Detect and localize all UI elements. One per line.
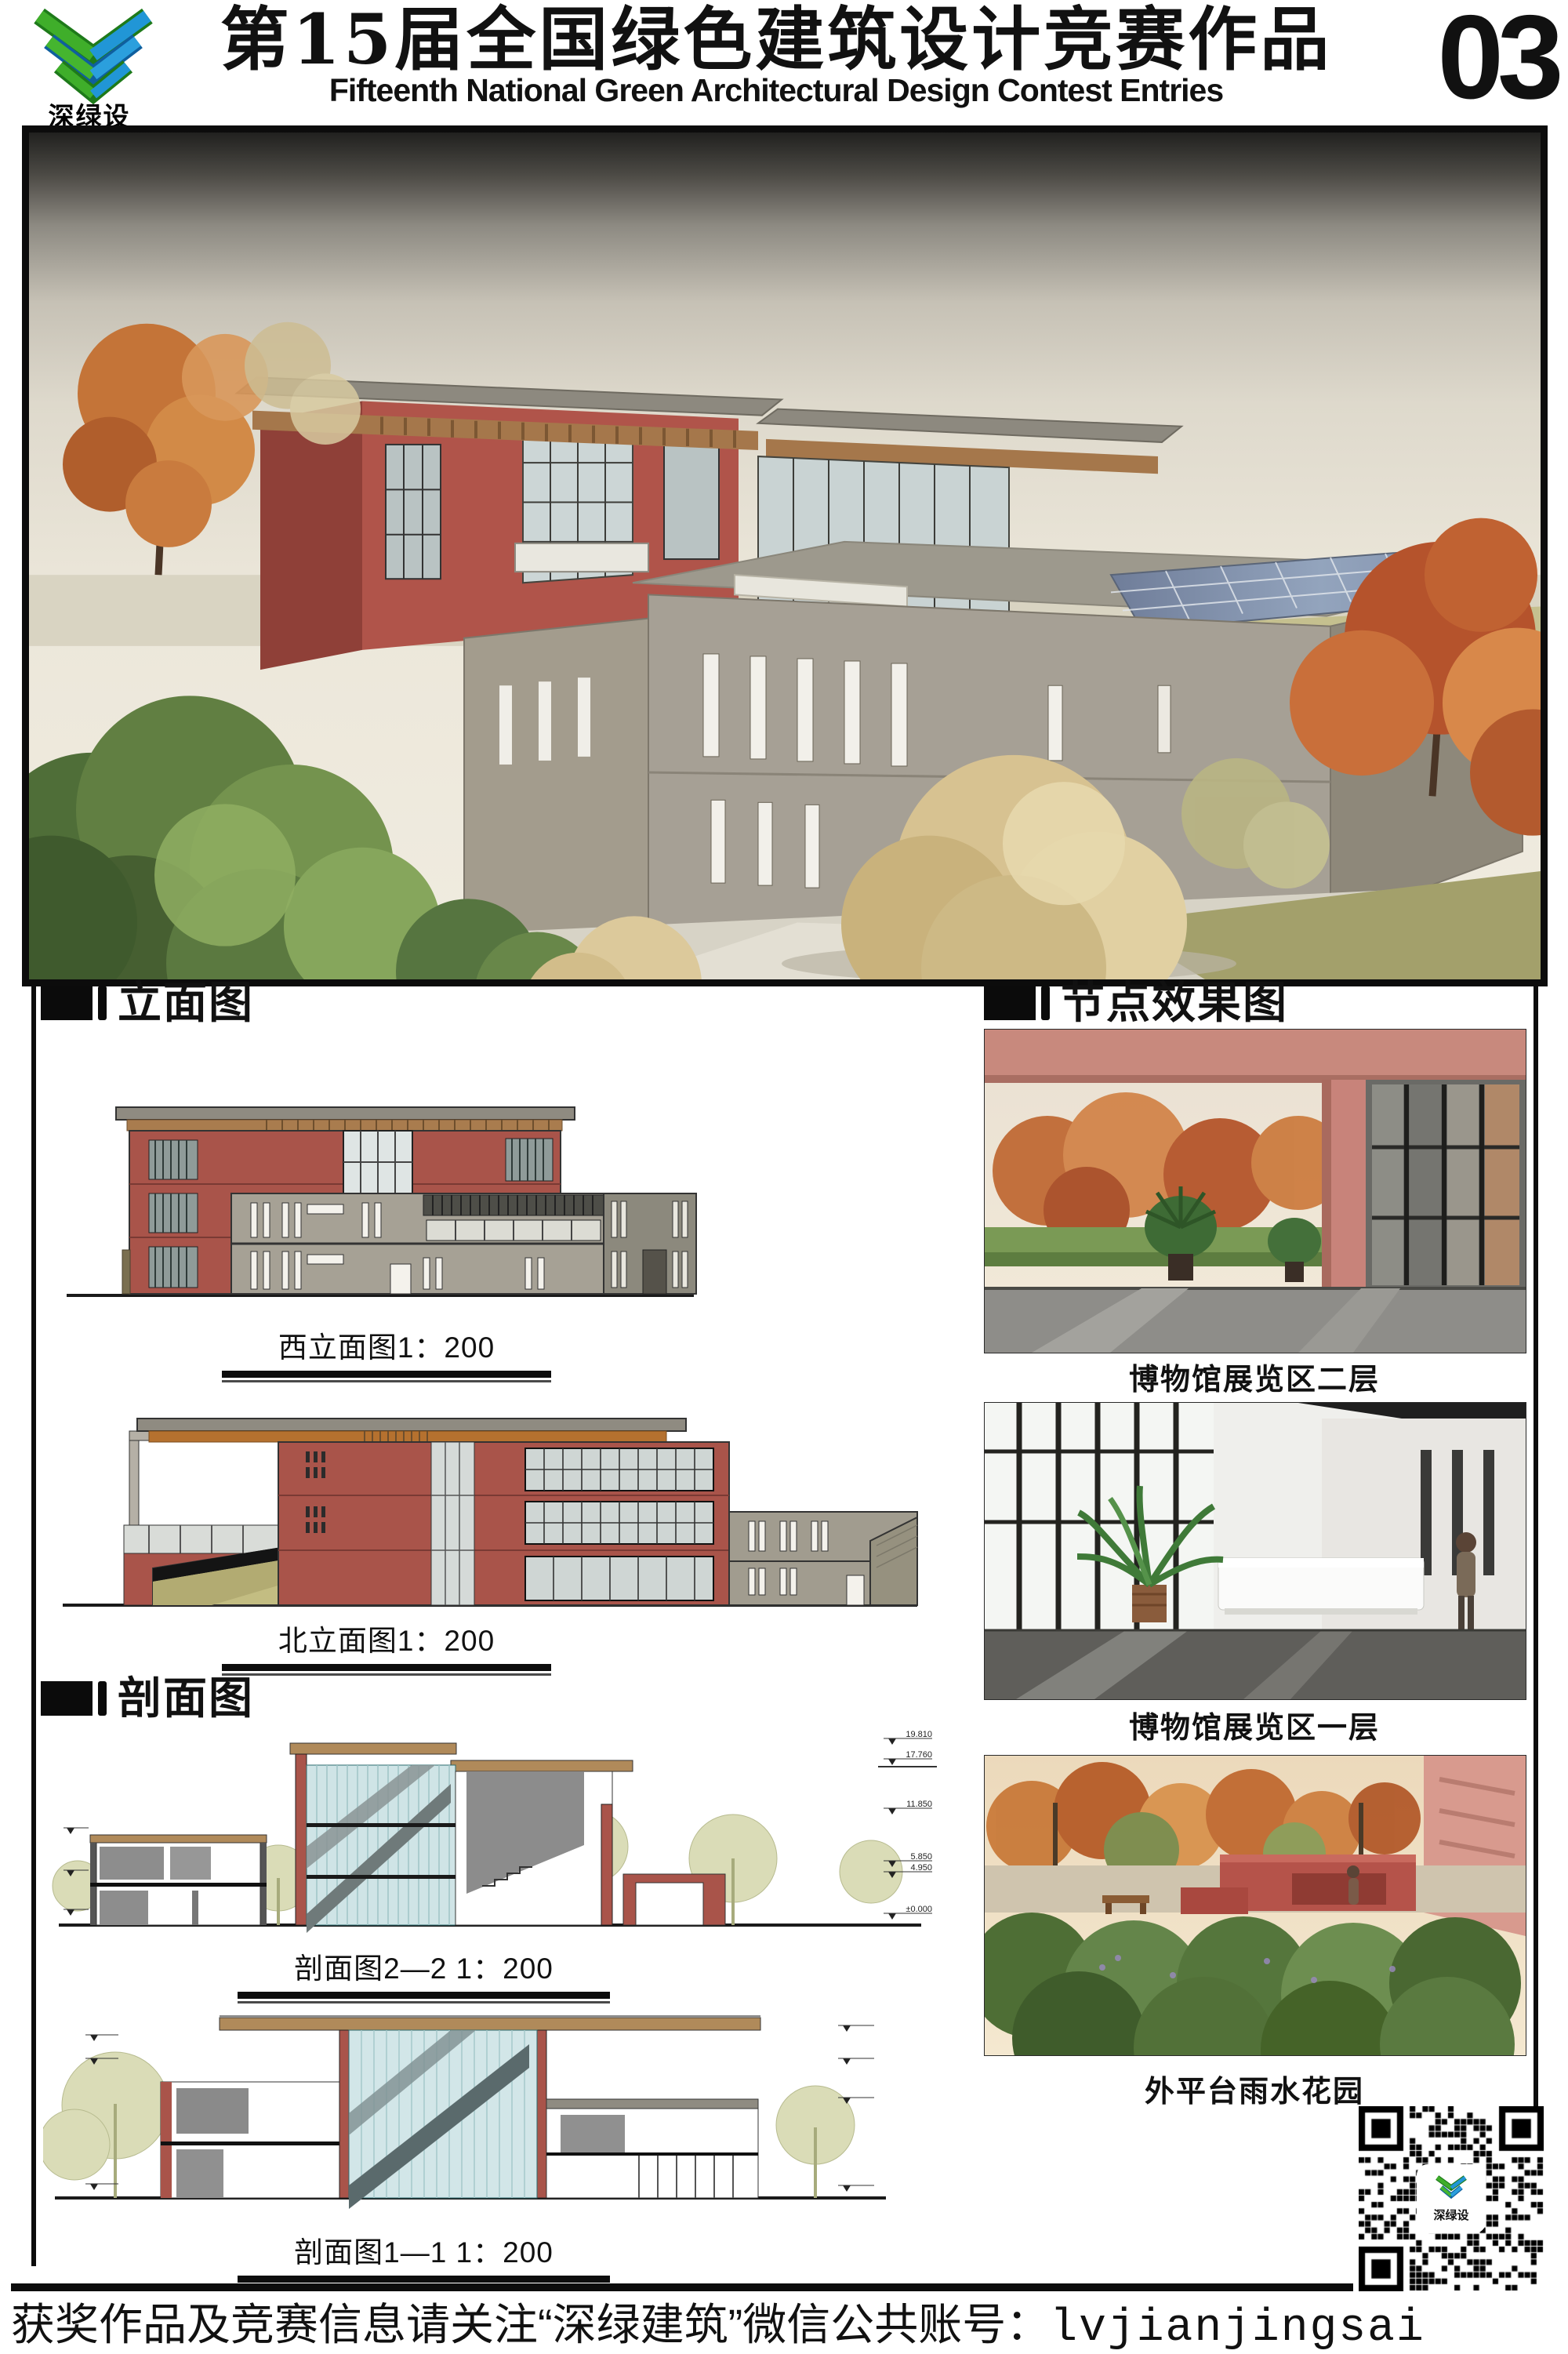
section-1-1-drawing <box>43 1988 898 2223</box>
page-number: 03 <box>1427 0 1568 126</box>
render-museum-2f <box>984 1029 1526 1353</box>
svg-text:17.760: 17.760 <box>906 1750 932 1760</box>
north-elevation-drawing <box>55 1408 925 1621</box>
qr-logo: 深绿设 <box>1418 2166 1484 2232</box>
frame-line-right <box>1534 980 1538 2121</box>
glass-wall-right <box>1366 1080 1526 1291</box>
svg-text:4.950: 4.950 <box>910 1863 932 1873</box>
heading-sections-text: 剖面图 <box>118 1676 254 1720</box>
heading-sections: 剖面图 <box>41 1680 254 1717</box>
heading-renders: 节点效果图 <box>984 984 1288 1022</box>
qr-logo-icon <box>1434 2174 1468 2206</box>
heading-elevations: 立面图 <box>41 984 254 1022</box>
caption-render-2f: 博物馆展览区二层 <box>984 1355 1525 1398</box>
heading-marker-bar <box>98 986 107 1020</box>
svg-text:11.850: 11.850 <box>906 1800 932 1809</box>
caption-underline <box>222 1664 551 1671</box>
svg-text:±0.000: ±0.000 <box>906 1905 932 1914</box>
footer: 获奖作品及竞赛信息请关注“深绿建筑”微信公共账号：lvjianjingsai <box>11 2290 1559 2354</box>
footer-text: 获奖作品及竞赛信息请关注“深绿建筑”微信公共账号： <box>11 2300 1050 2349</box>
caption-underline <box>222 1371 551 1378</box>
section-2-2-drawing: 19.810 17.760 11.850 5.850 4.950 ±0.000 <box>43 1729 937 1942</box>
qr-logo-text: 深绿设 <box>1433 2207 1468 2223</box>
caption-underline <box>238 2276 610 2283</box>
heading-renders-text: 节点效果图 <box>1061 981 1288 1025</box>
title-chinese: 第15届全国绿色建筑设计竞赛作品 <box>180 5 1372 75</box>
footer-account: lvjianjingsai <box>1050 2303 1425 2354</box>
heading-elevations-text: 立面图 <box>118 981 254 1025</box>
west-elevation-drawing <box>55 1084 706 1319</box>
caption-west-elevation: 西立面图1：200 <box>222 1324 551 1382</box>
hero-scene <box>29 133 1541 979</box>
heading-marker-rect <box>41 1681 93 1716</box>
title-english: Fifteenth National Green Architectural D… <box>180 72 1372 109</box>
board-title: 第15届全国绿色建筑设计竞赛作品 Fifteenth National Gree… <box>180 5 1372 109</box>
caption-north-elevation: 北立面图1：200 <box>222 1617 551 1676</box>
svg-text:19.810: 19.810 <box>906 1730 932 1739</box>
render-rain-garden <box>984 1755 1526 2056</box>
frame-line-left <box>31 980 36 2266</box>
heading-marker-rect <box>984 986 1036 1020</box>
curtain-wall-left <box>985 1403 1214 1630</box>
reception-desk <box>1218 1558 1424 1615</box>
render-museum-1f <box>984 1402 1526 1700</box>
heading-marker-bar <box>98 1681 107 1716</box>
svg-text:5.850: 5.850 <box>910 1852 932 1862</box>
caption-underline-2 <box>222 1380 551 1382</box>
caption-render-1f: 博物馆展览区一层 <box>984 1703 1525 1746</box>
heading-marker-rect <box>41 986 93 1020</box>
rain-garden-shrubs <box>985 1913 1521 2055</box>
qr-code: 深绿设 <box>1359 2106 1544 2291</box>
heading-marker-bar <box>1041 986 1050 1020</box>
caption-render-garden: 外平台雨水花园 <box>984 2067 1525 2110</box>
hero-render <box>22 125 1548 986</box>
caption-underline-2 <box>222 1673 551 1676</box>
logo: 深绿设 <box>27 5 160 124</box>
person <box>1347 1865 1359 1905</box>
caption-section-1-1: 剖面图1—1 1：200 <box>238 2229 610 2287</box>
